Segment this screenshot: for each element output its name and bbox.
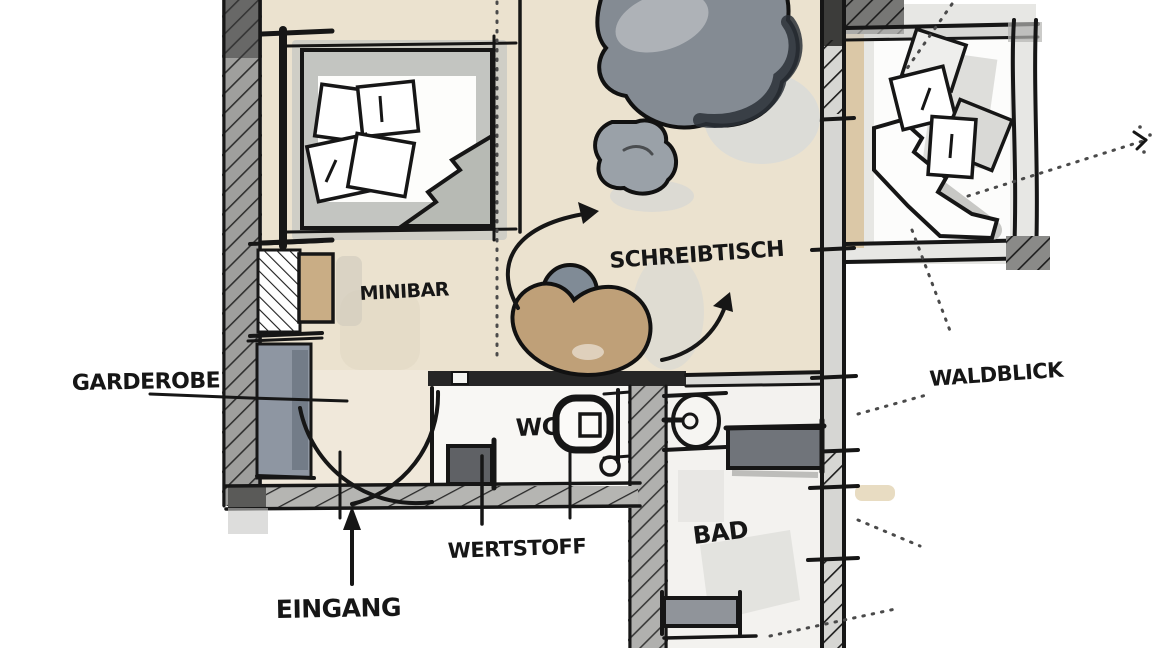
label-wc: WC bbox=[515, 413, 559, 442]
label-waldblick: WALDBLICK bbox=[929, 358, 1065, 391]
floorplan-canvas: MINIBAR SCHREIBTISCH GARDEROBE WC BAD WE… bbox=[0, 0, 1152, 648]
bath-counter bbox=[726, 420, 824, 475]
minibar-box bbox=[299, 254, 333, 322]
label-eingang: EINGANG bbox=[276, 593, 402, 624]
label-wertstoff: WERTSTOFF bbox=[447, 534, 586, 563]
entrance-arrow bbox=[343, 506, 361, 584]
label-minibar: MINIBAR bbox=[359, 278, 450, 305]
label-garderobe: GARDEROBE bbox=[72, 368, 221, 396]
wardrobe bbox=[248, 338, 322, 478]
beige-smudge bbox=[855, 485, 895, 501]
floorplan-sketch: MINIBAR SCHREIBTISCH GARDEROBE WC BAD WE… bbox=[0, 0, 1152, 648]
right-room-tan-strip bbox=[846, 26, 864, 248]
recycling-box bbox=[448, 440, 494, 524]
bath-gray-patch2 bbox=[678, 470, 724, 522]
